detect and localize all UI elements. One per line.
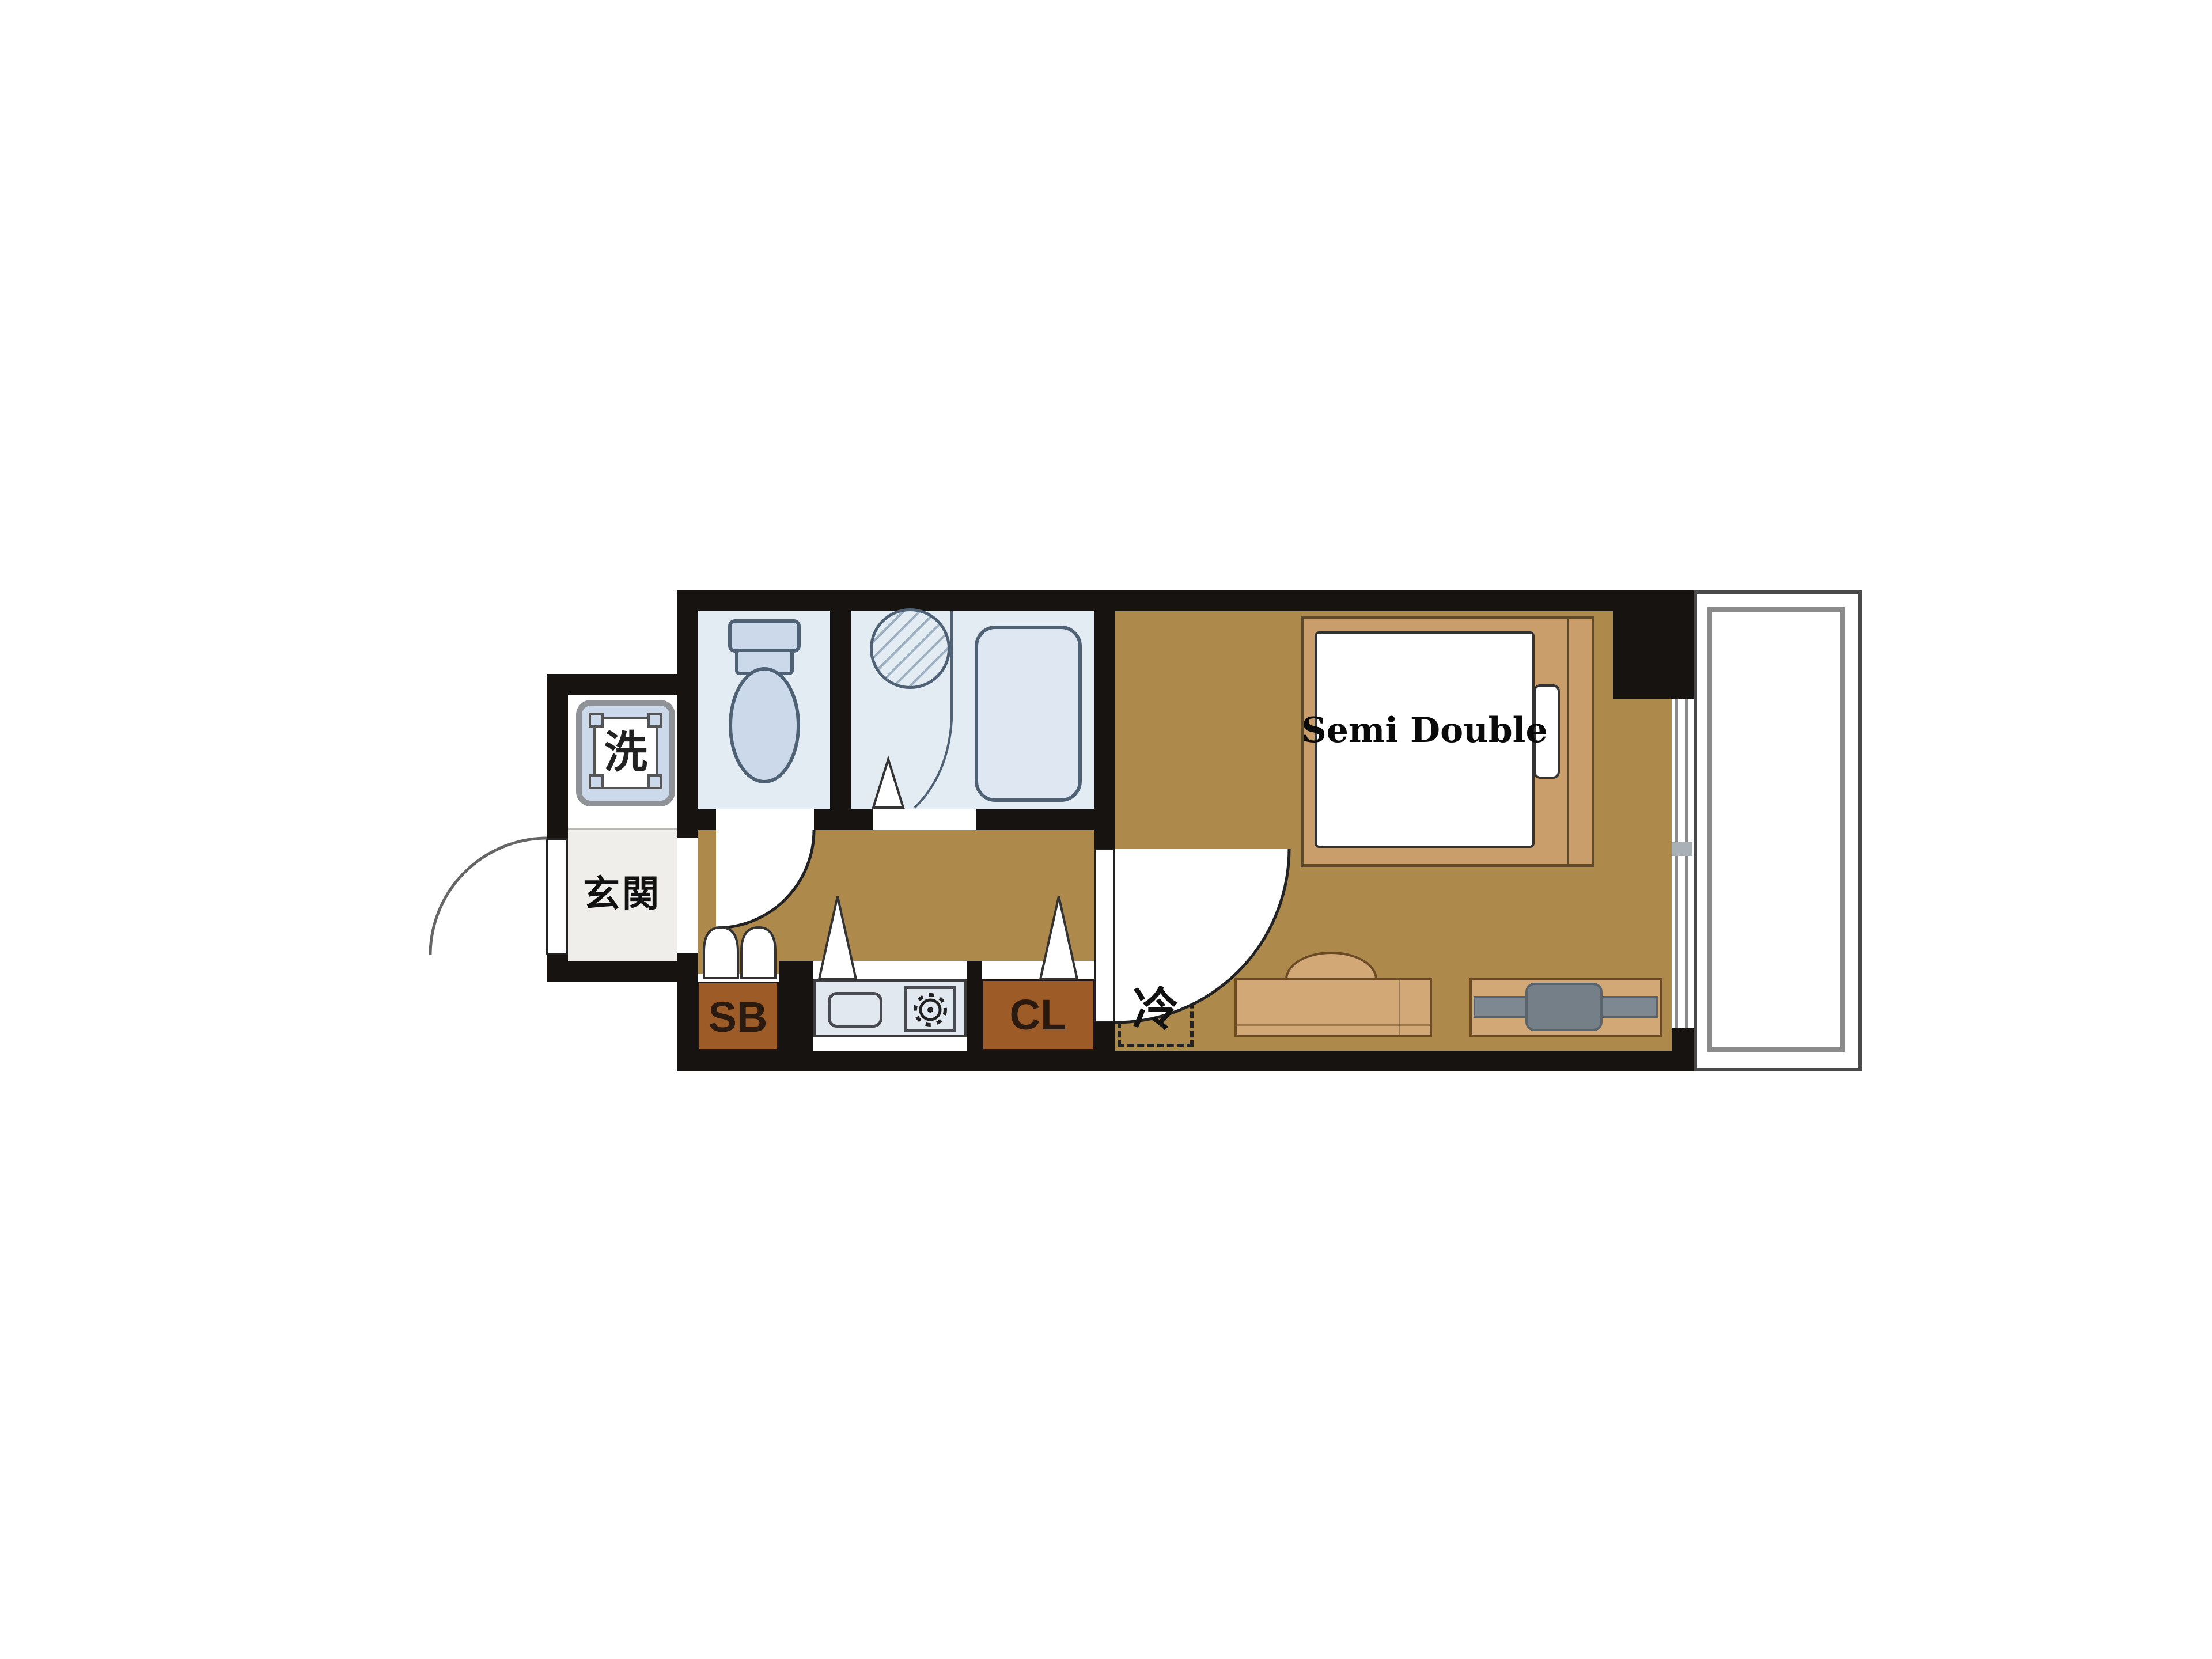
threshold-kitchen xyxy=(813,961,967,982)
desk-drawer-line xyxy=(1399,980,1400,1035)
wall-wetrooms-bottom-c xyxy=(976,809,1115,830)
label-closet: CL xyxy=(1010,994,1067,1036)
washing-machine-corner-br xyxy=(647,774,662,789)
balcony-window-rail-2 xyxy=(1685,699,1688,1028)
balcony-inner xyxy=(1707,607,1845,1052)
wall-left-upper xyxy=(677,590,698,838)
washing-machine-corner-bl xyxy=(589,774,604,789)
wall-bath-mainroom xyxy=(1094,590,1115,830)
wall-stub-sb-kitchen xyxy=(779,961,813,1051)
wall-maindoor-stub-bottom xyxy=(1094,1022,1115,1051)
wall-entrance-bottom xyxy=(547,961,698,982)
entry-door-leaf xyxy=(546,838,568,955)
kitchen-counter-edge xyxy=(813,1037,967,1051)
kitchen-sink xyxy=(828,992,882,1028)
balcony-window-latch xyxy=(1672,842,1692,856)
toilet-bowl xyxy=(729,667,800,783)
wall-annex-left-upper xyxy=(547,674,568,838)
threshold-shoebox xyxy=(698,974,779,982)
label-shoe-box: SB xyxy=(709,996,768,1039)
wall-pillar-bottom-right xyxy=(1672,1028,1694,1071)
wall-toilet-bath-divider xyxy=(830,590,851,830)
desk-edge-line xyxy=(1237,1024,1430,1026)
bath-sink xyxy=(870,608,950,689)
wall-bottom xyxy=(677,1051,1694,1071)
label-refrigerator: 冷 xyxy=(1132,987,1179,1033)
wall-top xyxy=(677,590,1694,611)
wall-pillar-top-right xyxy=(1613,590,1694,699)
label-washing-machine: 洗 xyxy=(604,731,647,775)
toilet-tank xyxy=(728,619,801,653)
wall-annex-top xyxy=(547,674,698,695)
balcony-window-rail-1 xyxy=(1675,699,1678,1028)
main-room-door-leaf xyxy=(1094,849,1115,1022)
wall-stub-kitchen-cl xyxy=(967,961,982,1051)
floor-plan: 洗 玄関 SB CL 冷 Semi Double xyxy=(0,0,2212,1659)
wall-maindoor-stub-top xyxy=(1094,830,1115,849)
washing-machine-corner-tl xyxy=(589,713,604,728)
label-bed-size: Semi Double xyxy=(1301,713,1547,748)
desk xyxy=(1234,978,1432,1037)
tv-center-unit xyxy=(1525,983,1603,1031)
label-entrance: 玄関 xyxy=(583,876,661,912)
wall-wetrooms-bottom-b xyxy=(814,809,873,830)
kitchen-stove xyxy=(904,986,956,1032)
washing-machine-corner-tr xyxy=(647,713,662,728)
wall-wetrooms-bottom-a xyxy=(698,809,716,830)
threshold-closet xyxy=(982,961,1094,982)
bed-headboard-line xyxy=(1567,616,1569,867)
entry-door-swing xyxy=(430,838,547,955)
bathtub xyxy=(975,626,1082,802)
